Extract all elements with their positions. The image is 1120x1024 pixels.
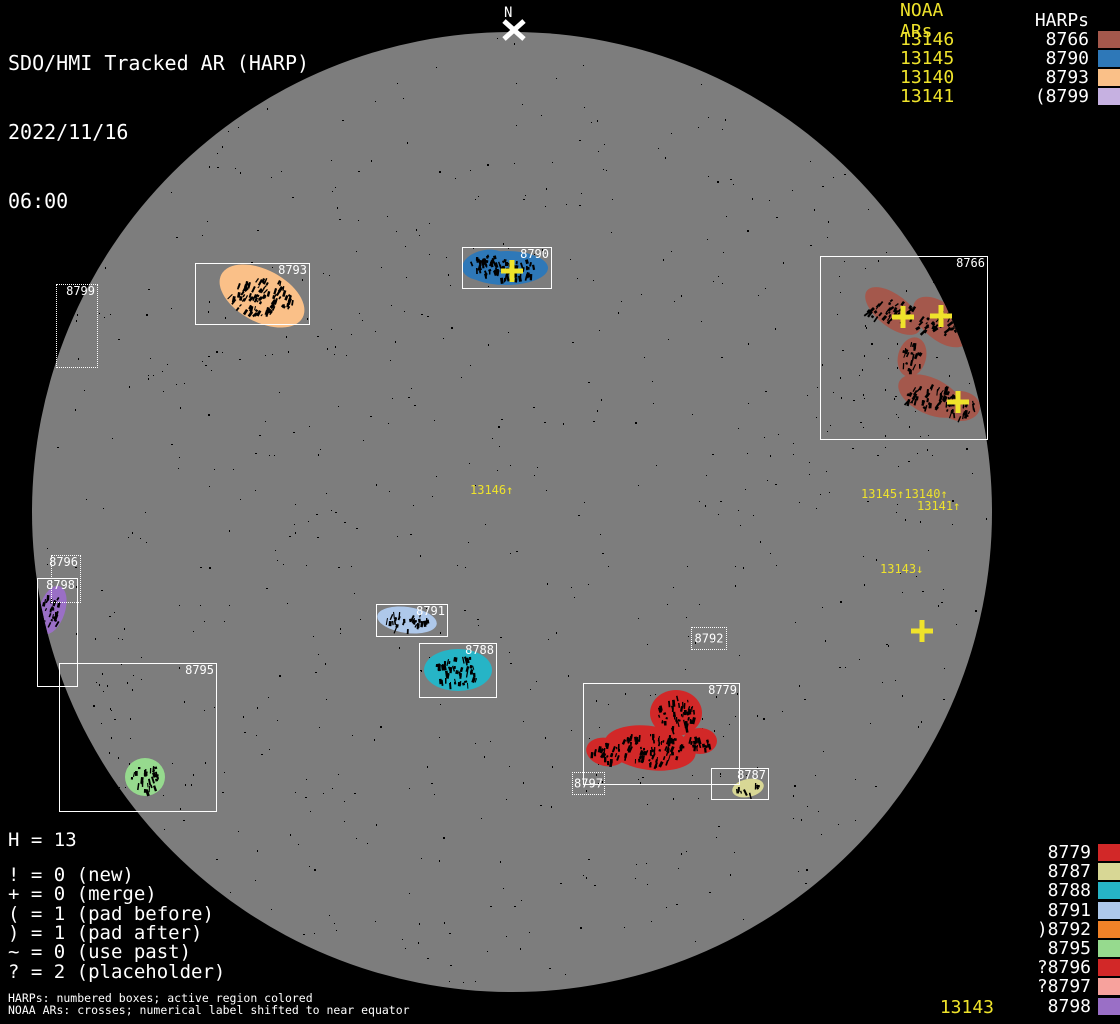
harp-number: )8792	[940, 919, 1091, 940]
noaa-harp-legend: NOAA ARs HARPs 1314687661314587901314087…	[900, 11, 1120, 106]
noaa-ar-number: 13140	[900, 67, 984, 88]
noaa-footer-label: 13143	[928, 997, 994, 1018]
harp-box-8799: 8799	[56, 284, 98, 368]
harp-box-label: 8766	[956, 257, 985, 270]
date-label: 2022/11/16	[8, 121, 309, 144]
noaa-ar-label: 13143↓	[880, 563, 923, 575]
title-block: SDO/HMI Tracked AR (HARP) 2022/11/16 06:…	[8, 6, 309, 259]
harp-box-label: 8788	[465, 644, 494, 657]
harp-list-row: 8787	[940, 862, 1120, 881]
color-swatch	[1098, 902, 1120, 919]
harp-list-row: ?8796	[940, 958, 1120, 977]
harp-number: 8793	[984, 67, 1089, 88]
north-label: N	[504, 5, 512, 21]
caption-noaa-ars: NOAA ARs: crosses; numerical label shift…	[8, 1003, 410, 1017]
harp-number: 8788	[940, 880, 1091, 901]
harp-count-label: H = 13	[8, 829, 77, 851]
harp-box-label: 8797	[574, 777, 603, 790]
noaa-ar-number: 13146	[900, 29, 984, 50]
harp-box-8797: 8797	[572, 772, 605, 795]
legend-header-row: NOAA ARs HARPs	[900, 11, 1120, 30]
legend-row: 131408793	[900, 68, 1120, 87]
harp-box-8766: 8766	[820, 256, 988, 440]
harp-list-row: 8779	[940, 843, 1120, 862]
harp-color-list: 8779878787888791)87928795?8796?87978798	[940, 843, 1120, 1016]
color-swatch	[1098, 69, 1120, 86]
harp-number: 8779	[940, 842, 1091, 863]
color-swatch	[1098, 959, 1120, 976]
harp-box-8787: 8787	[711, 768, 769, 800]
harp-number: 8795	[940, 938, 1091, 959]
harp-box-8790: 8790	[462, 247, 552, 289]
color-swatch	[1098, 921, 1120, 938]
harp-list-row: 8795	[940, 939, 1120, 958]
harp-box-label: 8795	[185, 664, 214, 677]
harp-number: 8790	[984, 48, 1089, 69]
noaa-ar-number: 13145	[900, 48, 984, 69]
harp-box-8793: 8793	[195, 263, 310, 325]
harp-box-label: 8791	[416, 605, 445, 618]
harp-number: (8799	[984, 86, 1089, 107]
symbol-stats-list: ! = 0 (new)+ = 0 (merge)( = 1 (pad befor…	[8, 866, 225, 982]
symbol-stat-line: ? = 2 (placeholder)	[8, 963, 225, 982]
color-swatch	[1098, 998, 1120, 1015]
harp-box-label: 8798	[46, 579, 75, 592]
harp-box-8795: 8795	[59, 663, 217, 812]
color-swatch	[1098, 882, 1120, 899]
harp-box-label: 8796	[49, 556, 78, 569]
harp-number: 8766	[984, 29, 1089, 50]
harp-box-label: 8790	[520, 248, 549, 261]
color-swatch	[1098, 844, 1120, 861]
legend-row: 13141(8799	[900, 87, 1120, 106]
color-swatch	[1098, 50, 1120, 67]
harp-number: 8787	[940, 861, 1091, 882]
harp-number: ?8797	[940, 976, 1091, 997]
harp-list-row: 8791	[940, 901, 1120, 920]
symbol-stat-line: ~ = 0 (use past)	[8, 943, 225, 962]
harp-number: 8791	[940, 900, 1091, 921]
color-swatch	[1098, 88, 1120, 105]
harp-box-8788: 8788	[419, 643, 497, 698]
time-label: 06:00	[8, 190, 309, 213]
harp-number: ?8796	[940, 957, 1091, 978]
harp-full-disk-plot: SDO/HMI Tracked AR (HARP) 2022/11/16 06:…	[0, 0, 1120, 1024]
color-swatch	[1098, 978, 1120, 995]
harp-list-row: 8788	[940, 881, 1120, 900]
color-swatch	[1098, 31, 1120, 48]
harp-list-row: ?8797	[940, 977, 1120, 996]
noaa-ar-number: 13141	[900, 86, 984, 107]
harp-box-label: 8787	[737, 769, 766, 782]
harp-box-label: 8779	[708, 684, 737, 697]
legend-row: 131458790	[900, 49, 1120, 68]
noaa-ar-label: 13146↑	[470, 484, 513, 496]
symbol-stat-line: + = 0 (merge)	[8, 885, 225, 904]
harp-box-label: 8799	[66, 285, 95, 298]
noaa-ar-label: 13141↑	[917, 500, 960, 512]
legend-row: 131468766	[900, 30, 1120, 49]
color-swatch	[1098, 863, 1120, 880]
page-title: SDO/HMI Tracked AR (HARP)	[8, 52, 309, 75]
color-swatch	[1098, 940, 1120, 957]
harp-box-8792: 8792	[691, 627, 727, 650]
harp-list-row: )8792	[940, 920, 1120, 939]
harp-box-label: 8793	[278, 264, 307, 277]
harps-header: HARPs	[984, 10, 1089, 31]
harp-box-label: 8792	[695, 632, 724, 645]
harp-box-8791: 8791	[376, 604, 448, 637]
